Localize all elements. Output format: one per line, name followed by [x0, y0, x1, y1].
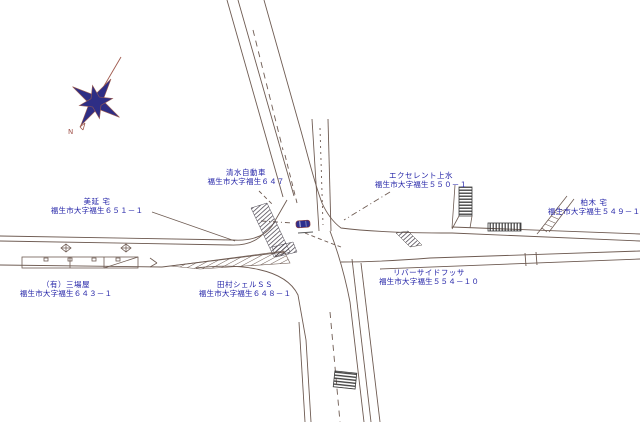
map-label-residence-right: 柏木 宅 福生市大字福生５４９－１ — [548, 198, 640, 216]
place-name: リバーサイドフッサ — [379, 268, 479, 277]
map-label-residence-left: 美延 宅 福生市大字福生６５１－１ — [51, 197, 143, 215]
place-address: 福生市大字福生５５４－１０ — [379, 277, 479, 286]
map-label-shop: （有）三場屋 福生市大字福生６４３－１ — [20, 280, 112, 298]
striped-structure — [452, 185, 521, 231]
crosswalk-right-road — [396, 231, 422, 247]
marker-underline — [298, 232, 313, 233]
place-address: 福生市大字福生５５０－１ — [375, 180, 467, 189]
compass-rose-icon: N — [68, 57, 121, 136]
sidewalk-taper-hatch — [170, 251, 290, 269]
place-address: 福生市大字福生６４８－１ — [199, 289, 291, 298]
map-label-riverside: リバーサイドフッサ 福生市大字福生５５４－１０ — [379, 268, 479, 286]
place-name: 柏木 宅 — [548, 198, 640, 207]
compass-north-label: N — [68, 128, 73, 136]
map-label-gas-station: 田村シェルＳＳ 福生市大字福生６４８－１ — [199, 280, 291, 298]
place-name: （有）三場屋 — [20, 280, 112, 289]
place-address: 福生市大字福生６４３－１ — [20, 289, 112, 298]
place-address: 福生市大字福生５４９－１ — [548, 207, 640, 216]
direction-arrow — [150, 258, 157, 267]
place-name: 清水自動車 — [208, 168, 285, 177]
path-arrow — [537, 228, 547, 234]
place-address: 福生市大字福生６５１－１ — [51, 206, 143, 215]
place-address: 福生市大字福生６４７ — [208, 177, 285, 186]
map-label-excellent: エクセレント上水 福生市大字福生５５０－１ — [375, 171, 467, 189]
place-name: 田村シェルＳＳ — [199, 280, 291, 289]
diamond-symbol-icon — [61, 244, 131, 252]
map-label-shimizu: 清水自動車 福生市大字福生６４７ — [208, 168, 285, 186]
place-name: エクセレント上水 — [375, 171, 467, 180]
vehicle-marker-icon — [296, 220, 310, 228]
place-name: 美延 宅 — [51, 197, 143, 206]
crosswalk-bar-lower — [333, 371, 357, 389]
site-map-drawing: N 清水自動車 福生市大字福生６４７ エクセレント上水 福生市大字福生５５０－１… — [0, 0, 640, 422]
